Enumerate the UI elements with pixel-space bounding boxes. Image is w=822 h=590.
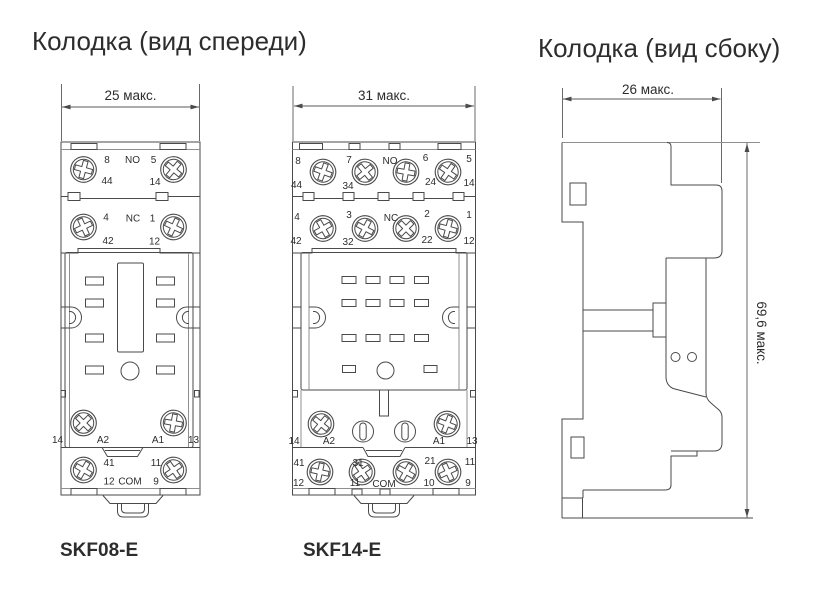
front-view-title: Колодка (вид спереди) (32, 26, 307, 56)
terminal-label: 41 (103, 458, 115, 469)
screw-terminal-icon (159, 408, 189, 438)
terminal-label: 9 (465, 478, 471, 489)
terminal-label: 11 (151, 458, 162, 469)
side-width-dimension: 26 макс. (563, 82, 722, 183)
terminal-label: A1 (433, 436, 446, 447)
skf08-screw-terminals (65, 151, 191, 487)
screw-terminal-icon (432, 213, 463, 244)
terminal-label: 2 (424, 209, 430, 220)
screw-terminal-icon (156, 210, 190, 244)
terminal-label: 6 (423, 153, 429, 164)
terminal-label: 32 (342, 237, 354, 248)
terminal-label: NC (126, 214, 140, 225)
skf14-width-dim-label: 31 макс. (358, 88, 410, 103)
side-width-dim-label: 26 макс. (622, 82, 674, 97)
terminal-label: 44 (101, 176, 113, 187)
skf08-model-label: SKF08-E (60, 540, 138, 561)
side-height-dim-label: 69,6 макс. (754, 301, 769, 364)
screw-terminal-icon (431, 455, 465, 489)
drawing-canvas: Колодка (вид спереди) Колодка (вид сбоку… (0, 0, 822, 590)
side-view: 26 макс. 69,6 макс. (562, 82, 769, 518)
terminal-label: 8 (295, 156, 301, 167)
datasheet-drawing-page: Колодка (вид спереди) Колодка (вид сбоку… (0, 0, 822, 590)
terminal-label: A2 (323, 436, 336, 447)
terminal-label: 14 (463, 178, 475, 189)
terminal-label: COM (118, 477, 141, 488)
terminal-label: 9 (153, 477, 159, 488)
terminal-label: 34 (342, 181, 354, 192)
terminal-label: 24 (425, 177, 437, 188)
terminal-label: NO (383, 156, 398, 167)
skf14-view: 31 макс. (288, 86, 478, 561)
terminal-label: 22 (421, 235, 433, 246)
screw-terminal-icon (68, 154, 99, 185)
terminal-label: 44 (291, 180, 303, 191)
screw-terminal-icon (155, 151, 191, 187)
terminal-label: 13 (466, 436, 478, 447)
terminal-label: 1 (150, 214, 156, 225)
screw-terminal-icon (305, 457, 335, 487)
terminal-label: 13 (188, 435, 200, 446)
terminal-label: COM (372, 479, 395, 490)
terminal-label: 12 (463, 236, 475, 247)
side-body-outline (562, 143, 760, 519)
screw-terminal-icon (66, 210, 100, 244)
skf14-width-dimension: 31 макс. (293, 86, 475, 141)
terminal-label: 41 (293, 458, 305, 469)
terminal-label: 4 (294, 212, 300, 223)
terminal-label: 4 (103, 213, 109, 224)
terminal-label: 10 (423, 478, 435, 489)
terminal-label: NC (384, 213, 398, 224)
side-view-title: Колодка (вид сбоку) (538, 33, 780, 63)
terminal-label: 21 (424, 456, 436, 467)
side-height-dimension: 69,6 макс. (745, 143, 769, 518)
terminal-label: 11 (350, 478, 361, 489)
terminal-label: A1 (152, 435, 165, 446)
terminal-label: 12 (149, 237, 161, 248)
skf14-model-label: SKF14-E (303, 540, 381, 561)
terminal-label: 8 (104, 155, 110, 166)
terminal-label: 42 (102, 236, 114, 247)
terminal-label: 7 (346, 155, 352, 166)
skf08-width-dim-label: 25 макс. (104, 88, 156, 103)
terminal-label: 14 (149, 177, 161, 188)
terminal-label: 12 (103, 477, 115, 488)
terminal-label: 14 (288, 436, 300, 447)
terminal-label: NO (125, 155, 140, 166)
terminal-label: 11 (465, 457, 476, 468)
skf08-width-dimension: 25 макс. (62, 84, 200, 141)
skf08-view: 25 макс. (52, 84, 200, 561)
screw-terminal-icon (306, 211, 341, 246)
terminal-label: 1 (466, 210, 472, 221)
terminal-label: 5 (466, 154, 472, 165)
screw-terminal-icon (66, 453, 101, 488)
terminal-label: 31 (352, 458, 364, 469)
terminal-label: 14 (52, 435, 64, 446)
terminal-label: 12 (293, 478, 305, 489)
terminal-label: 5 (151, 155, 157, 166)
terminal-label: 3 (346, 210, 352, 221)
screw-terminal-icon (307, 156, 340, 189)
terminal-label: 42 (290, 236, 302, 247)
terminal-label: A2 (97, 435, 110, 446)
